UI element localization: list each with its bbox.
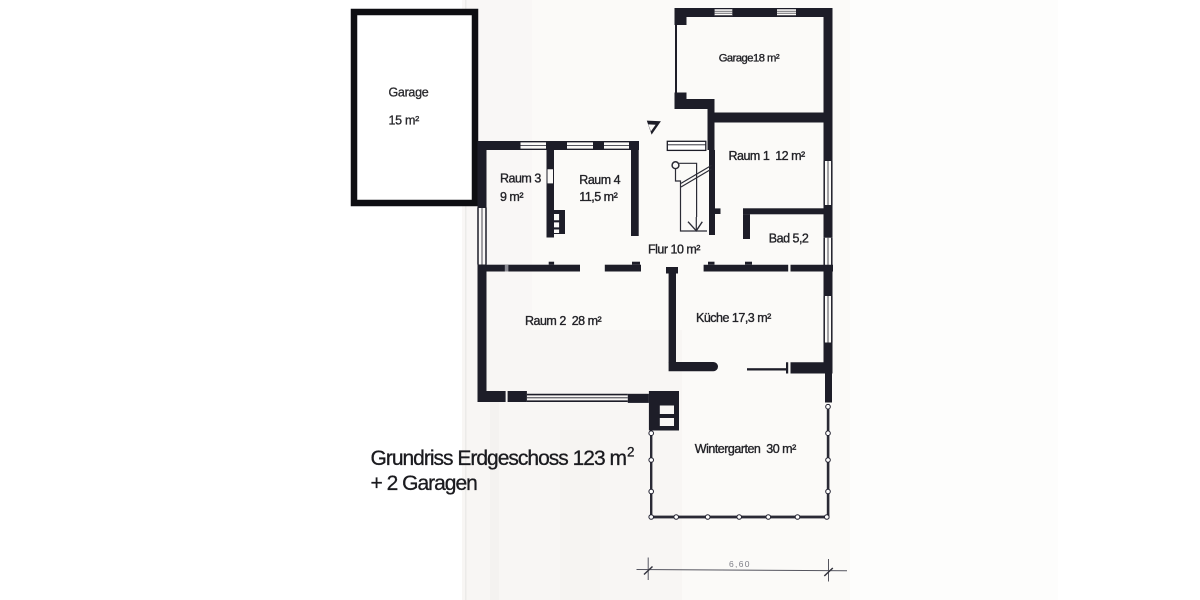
svg-text:Garage: Garage [389, 86, 429, 100]
svg-text:Raum 4: Raum 4 [579, 173, 620, 187]
svg-text:+ 2 Garagen: + 2 Garagen [371, 472, 478, 495]
svg-text:Bad 5,2: Bad 5,2 [769, 232, 809, 246]
svg-text:11,5 m²: 11,5 m² [579, 190, 617, 204]
svg-text:Raum 2 28 m²: Raum 2 28 m² [525, 314, 602, 328]
svg-text:Küche 17,3 m²: Küche 17,3 m² [696, 311, 771, 325]
svg-text:Grundriss Erdgeschoss 123 m2: Grundriss Erdgeschoss 123 m2 [371, 445, 634, 471]
svg-text:Raum 1 12 m²: Raum 1 12 m² [729, 149, 806, 163]
svg-text:Wintergarten 30 m²: Wintergarten 30 m² [695, 442, 796, 456]
svg-text:Garage18 m²: Garage18 m² [719, 53, 780, 65]
svg-text:Raum 3: Raum 3 [500, 172, 541, 186]
svg-text:Flur 10 m²: Flur 10 m² [648, 242, 700, 256]
svg-text:15 m²: 15 m² [389, 114, 420, 128]
svg-text:9 m²: 9 m² [500, 190, 523, 204]
svg-text:6,60: 6,60 [729, 559, 751, 569]
